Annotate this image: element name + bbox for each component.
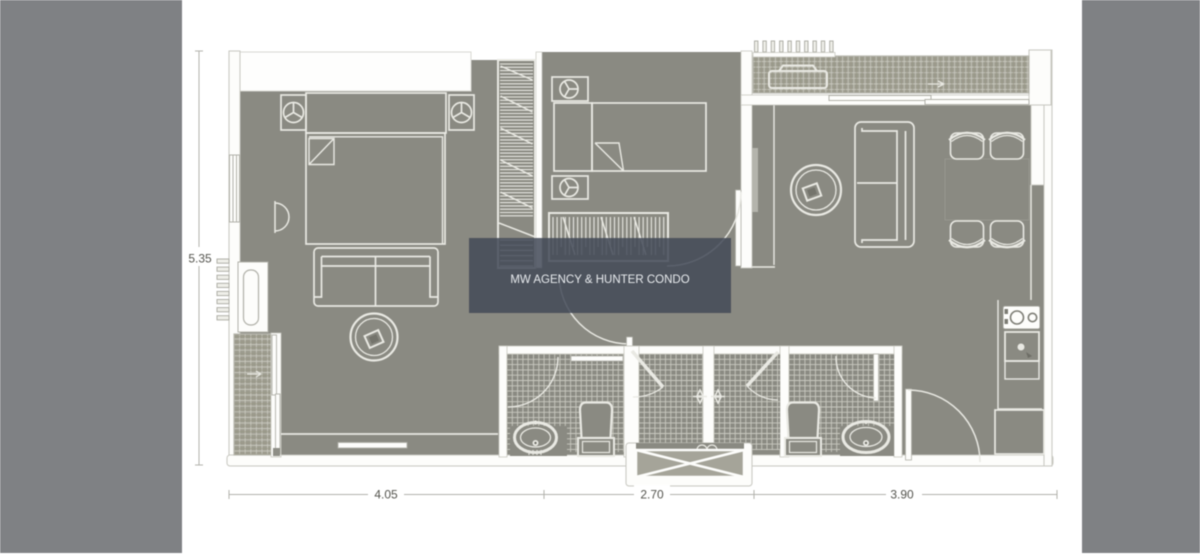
svg-text:3.90: 3.90 bbox=[890, 488, 914, 502]
svg-text:5.35: 5.35 bbox=[188, 252, 212, 266]
svg-text:MW AGENCY & HUNTER CONDO: MW AGENCY & HUNTER CONDO bbox=[510, 274, 689, 286]
svg-text:4.05: 4.05 bbox=[374, 488, 398, 502]
svg-text:2.70: 2.70 bbox=[640, 488, 664, 502]
